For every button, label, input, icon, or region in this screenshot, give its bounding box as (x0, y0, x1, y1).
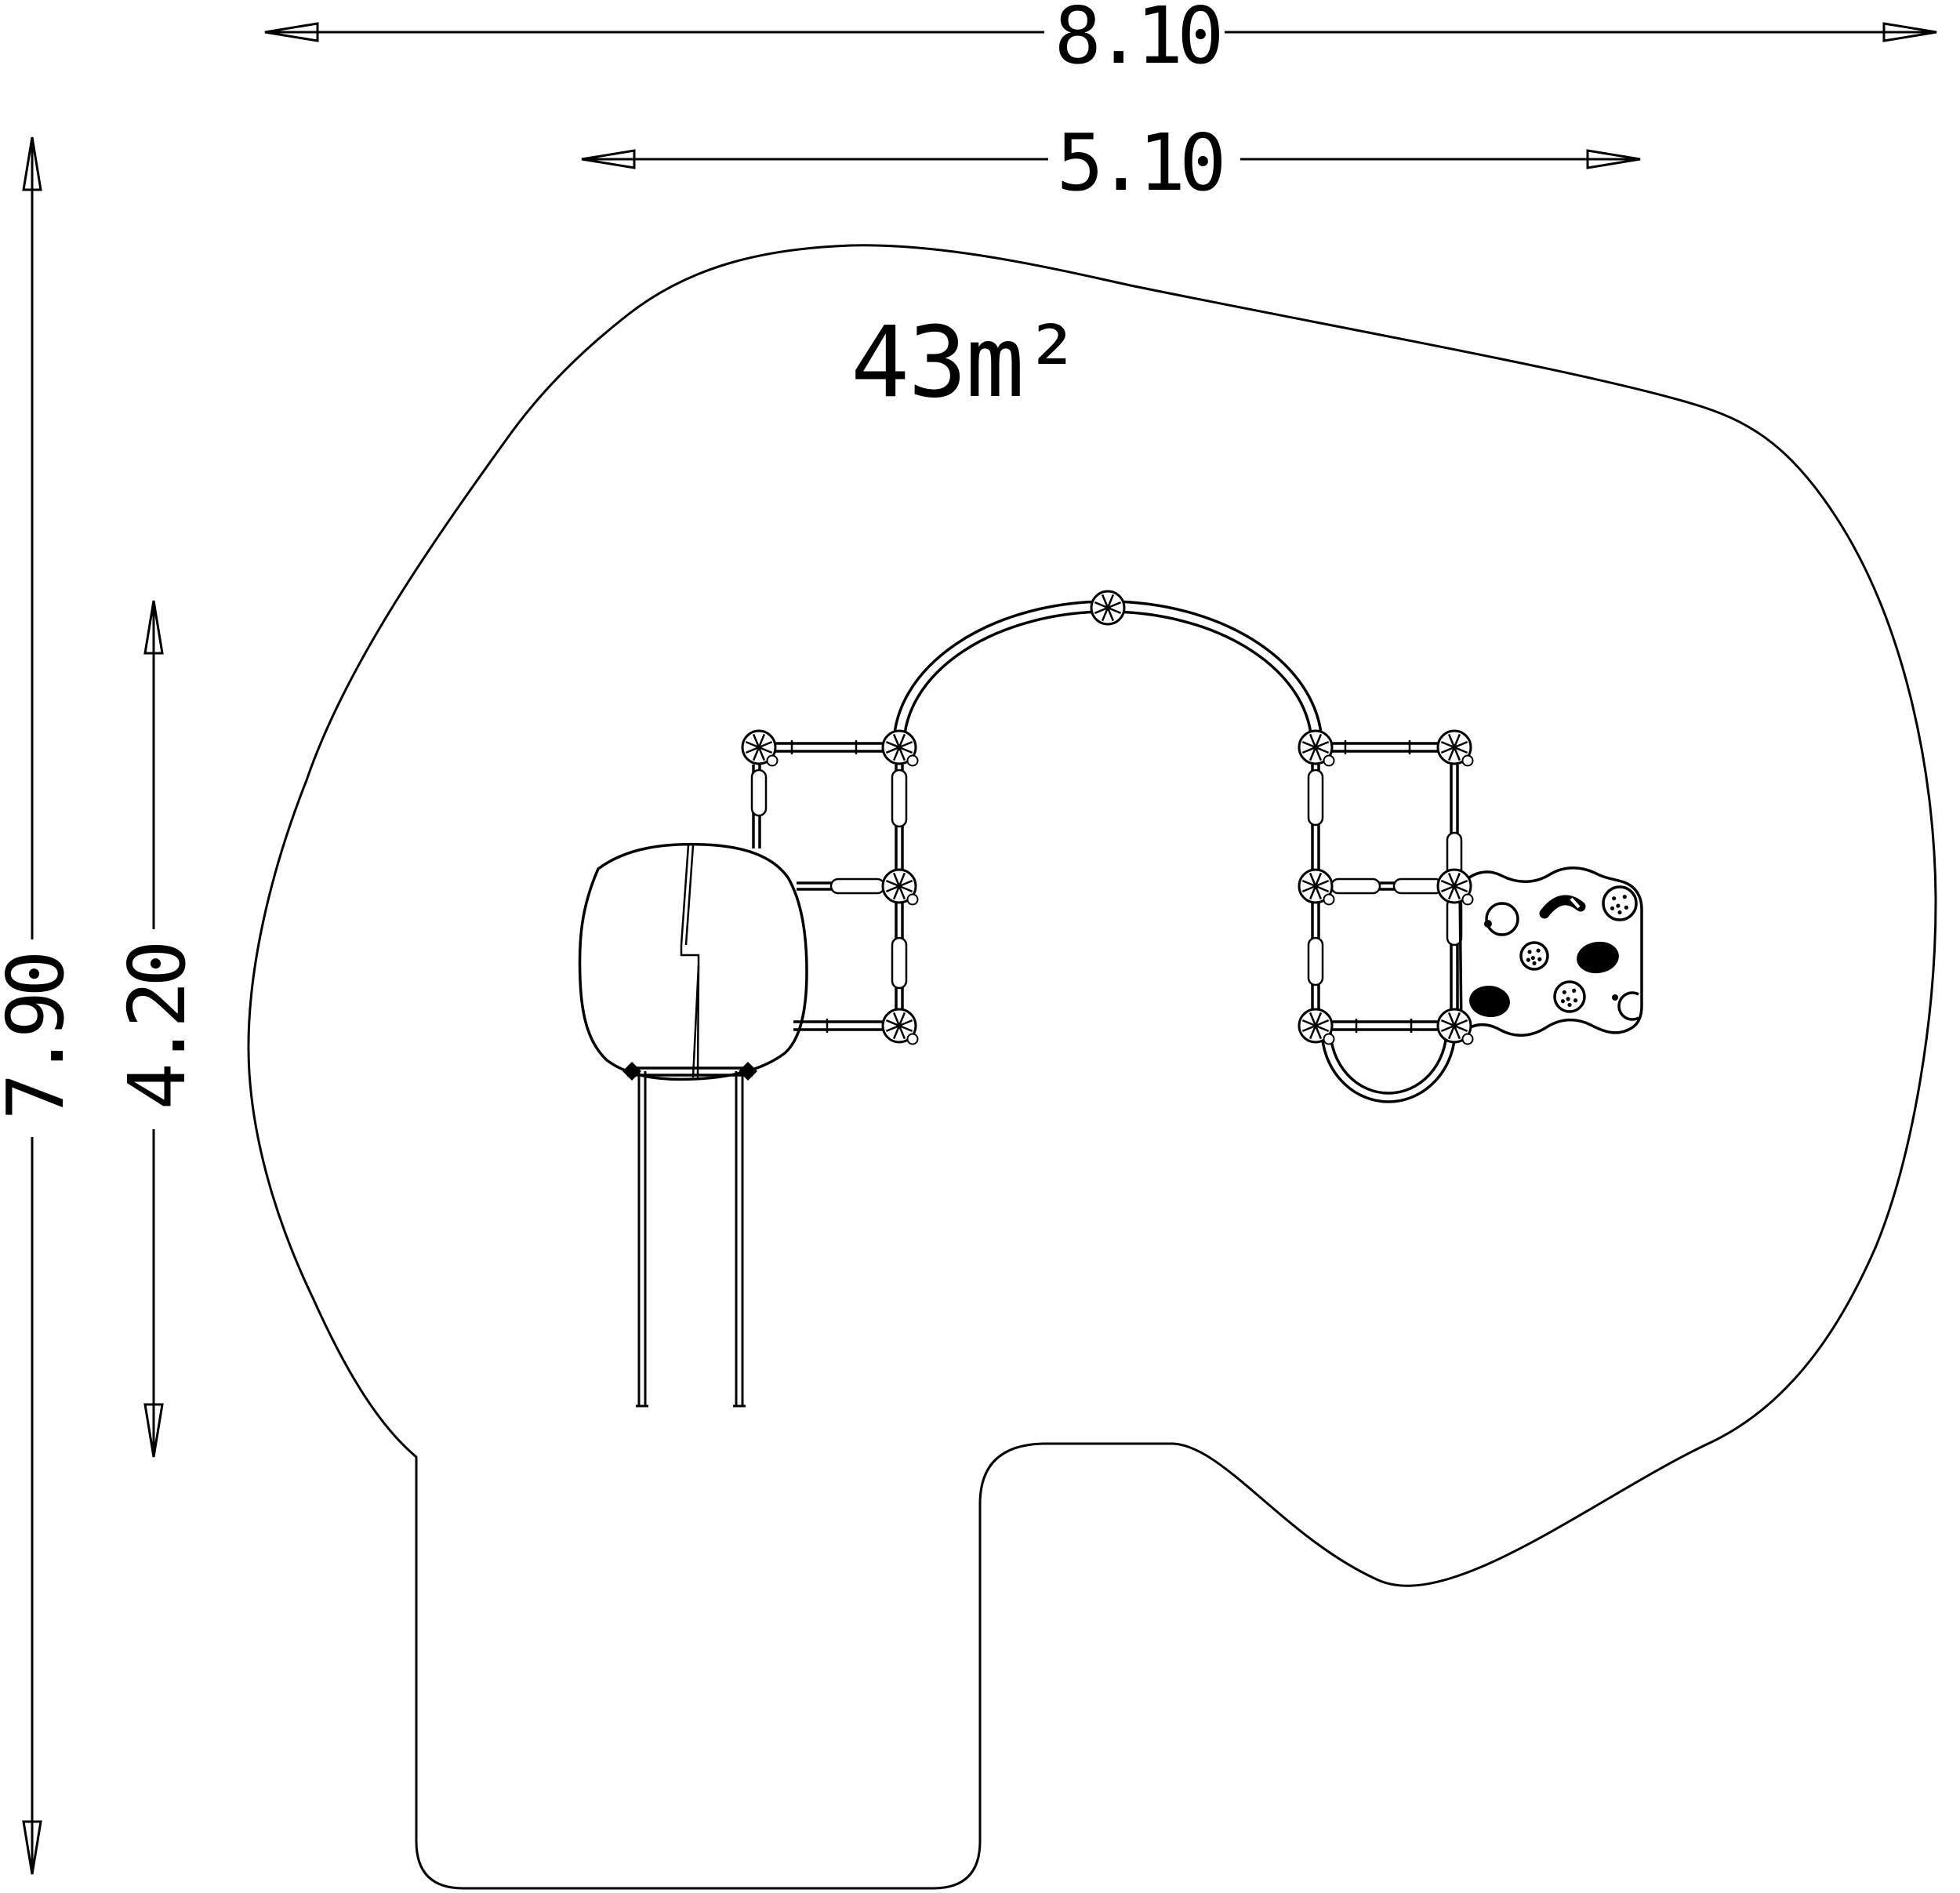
climbing-hold-icon (1572, 989, 1576, 993)
climbing-hold-icon (1526, 958, 1530, 962)
climbing-hold-icon (1537, 957, 1541, 961)
post-connectors (742, 591, 1473, 1045)
climbing-wall (1460, 868, 1642, 1036)
climbing-hold-icon (1532, 961, 1536, 965)
post-connector-icon (883, 870, 918, 905)
post-connector-icon (1438, 1009, 1473, 1045)
dimension-inner-height: 4.20 (111, 601, 203, 1457)
post-connector-icon (1438, 870, 1473, 905)
climbing-hold-icon (1603, 887, 1636, 920)
climbing-hold-icon (1617, 910, 1621, 914)
safety-surface-outline (249, 245, 1936, 1888)
post-connector-icon (1299, 1009, 1334, 1045)
clamp-sleeve (1394, 879, 1443, 893)
climbing-hold-icon (1574, 939, 1621, 976)
entry-hoop (1322, 1030, 1455, 1102)
climbing-hold-icon (1484, 920, 1492, 928)
dimension-total-height-label: 7.90 (0, 955, 82, 1121)
climbing-hold-icon (1486, 903, 1518, 935)
clamp-sleeve (1308, 938, 1323, 985)
post-connector-icon (742, 731, 778, 766)
clamp-sleeve (892, 938, 906, 988)
dimension-inner-width: 5.10 (582, 117, 1640, 209)
slide (579, 845, 807, 1406)
climbing-hold-icon (1612, 994, 1618, 1001)
climbing-hold-icon (1566, 997, 1570, 1001)
post-connector-icon (883, 1009, 918, 1045)
dimension-total-width-label: 8.10 (1054, 0, 1220, 82)
clamp-sleeve (831, 879, 884, 893)
post-connector-icon (1299, 731, 1334, 766)
climbing-hold-icon (1563, 990, 1566, 994)
plan-drawing: 8.10 5.10 7.90 4.20 43m² (0, 0, 1960, 1893)
clamp-sleeve (752, 770, 766, 816)
climbing-hold-icon (1610, 907, 1614, 910)
climbing-hold-icon (1561, 999, 1565, 1003)
area-label: 43m² (851, 306, 1080, 420)
climbing-hold-icon (1537, 949, 1541, 953)
climbing-hold-icon (1527, 950, 1531, 954)
clamp-sleeve (1331, 879, 1380, 893)
clamp-sleeve (1308, 770, 1323, 825)
playground-plan-canvas: 8.10 5.10 7.90 4.20 43m² (0, 0, 1960, 1893)
climbing-hold-icon (1624, 906, 1628, 910)
dimension-total-width: 8.10 (265, 0, 1936, 82)
post-connector-icon (1091, 591, 1124, 624)
climbing-hold-icon (1619, 993, 1639, 1019)
climbing-hold-icon (1573, 998, 1577, 1002)
dimension-inner-width-label: 5.10 (1057, 117, 1222, 209)
panel-seam (698, 965, 699, 1077)
climbing-hold-icon (1567, 1003, 1571, 1007)
climbing-hold-icon (1623, 895, 1627, 899)
slide-start-panel (579, 845, 807, 1080)
post-connector-icon (1299, 870, 1334, 905)
clamp-sleeve (892, 770, 906, 827)
dimension-total-height: 7.90 (0, 137, 82, 1874)
safety-surface-path (249, 245, 1936, 1888)
dimension-inner-height-label: 4.20 (111, 945, 203, 1110)
climbing-hold-icon (1616, 904, 1620, 908)
post-connector-icon (883, 731, 918, 766)
climbing-hold-icon (1612, 896, 1616, 900)
climbing-hold-icon (1531, 956, 1535, 960)
climbing-hold-icon (1555, 982, 1584, 1012)
post-connector-icon (1438, 731, 1473, 766)
climbing-hold-icon (1468, 984, 1511, 1019)
